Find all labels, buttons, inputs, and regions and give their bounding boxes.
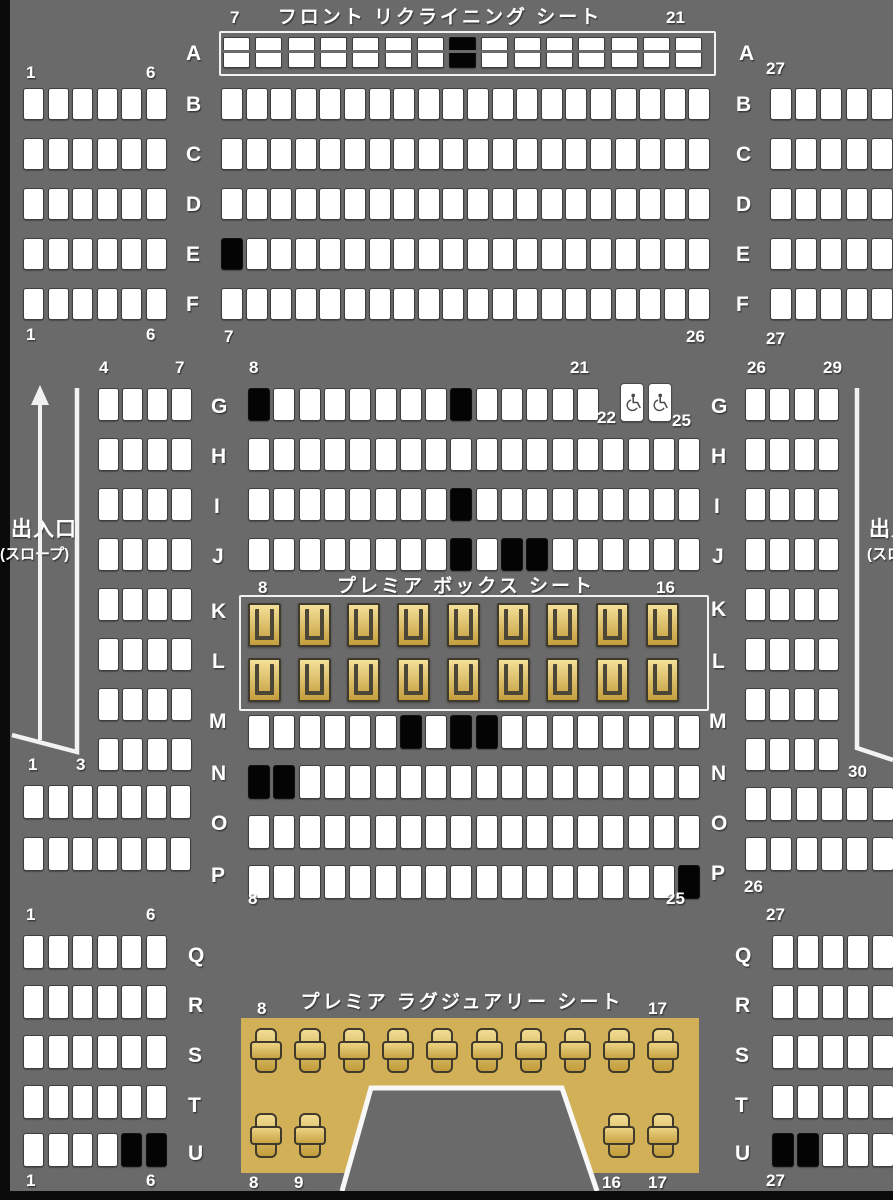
seat-M14[interactable] [400,715,422,749]
seat-J24[interactable] [653,538,675,571]
seat-A15[interactable] [481,37,508,68]
seat-E26[interactable] [688,238,710,270]
seat-F23[interactable] [615,288,637,320]
seat-B17[interactable] [467,88,489,120]
seat-M9[interactable] [273,715,295,749]
seat-G24[interactable] [648,383,672,422]
seat-L7[interactable] [171,638,192,671]
seat-E12[interactable] [344,238,366,270]
seat-B3[interactable] [72,88,93,120]
seat-J15[interactable] [425,538,447,571]
seat-E7[interactable] [221,238,243,270]
seat-G4[interactable] [98,388,119,421]
seat-E27[interactable] [770,238,792,270]
seat-G8[interactable] [248,388,270,421]
seat-N15[interactable] [425,765,447,799]
seat-I10[interactable] [299,488,321,521]
seat-I7[interactable] [171,488,192,521]
seat-C25[interactable] [664,138,686,170]
seat-D5[interactable] [121,188,142,220]
seat-H15[interactable] [425,438,447,471]
seat-C13[interactable] [369,138,391,170]
seat-R4[interactable] [97,985,118,1019]
seat-A10[interactable] [320,37,347,68]
seat-P11[interactable] [324,865,346,899]
seat-P14[interactable] [400,865,422,899]
seat-P30[interactable] [846,837,868,871]
seat-B10[interactable] [295,88,317,120]
seat-D30[interactable] [846,188,868,220]
seat-E14[interactable] [393,238,415,270]
seat-D16[interactable] [442,188,464,220]
seat-M29[interactable] [818,688,839,721]
seat-B20[interactable] [541,88,563,120]
seat-S10[interactable] [338,1028,370,1073]
seat-A7[interactable] [223,37,250,68]
seat-L12[interactable] [447,658,480,702]
seat-I22[interactable] [602,488,624,521]
seat-J18[interactable] [501,538,523,571]
seat-Q1[interactable] [23,935,44,969]
seat-P20[interactable] [552,865,574,899]
seat-E5[interactable] [121,238,142,270]
seat-D10[interactable] [295,188,317,220]
seat-O1[interactable] [23,785,44,819]
seat-I17[interactable] [476,488,498,521]
seat-D26[interactable] [688,188,710,220]
seat-Q3[interactable] [72,935,93,969]
seat-I19[interactable] [526,488,548,521]
seat-J4[interactable] [98,538,119,571]
seat-E10[interactable] [295,238,317,270]
seat-O22[interactable] [602,815,624,849]
seat-Q28[interactable] [797,935,819,969]
seat-D13[interactable] [369,188,391,220]
seat-C31[interactable] [871,138,893,170]
seat-N29[interactable] [818,738,839,771]
seat-E24[interactable] [639,238,661,270]
seat-F3[interactable] [72,288,93,320]
seat-M18[interactable] [501,715,523,749]
seat-N7[interactable] [171,738,192,771]
seat-T1[interactable] [23,1085,44,1119]
seat-F26[interactable] [688,288,710,320]
seat-D6[interactable] [146,188,167,220]
seat-B1[interactable] [23,88,44,120]
seat-O3[interactable] [72,785,93,819]
seat-L10[interactable] [347,658,380,702]
seat-A11[interactable] [352,37,379,68]
seat-N16[interactable] [450,765,472,799]
seat-U16[interactable] [603,1113,635,1158]
seat-K8[interactable] [248,603,281,647]
seat-O31[interactable] [872,787,893,821]
seat-U29[interactable] [822,1133,844,1167]
seat-M24[interactable] [653,715,675,749]
seat-B21[interactable] [565,88,587,120]
seat-H24[interactable] [653,438,675,471]
seat-D15[interactable] [418,188,440,220]
seat-E17[interactable] [467,238,489,270]
seat-C7[interactable] [221,138,243,170]
seat-A9[interactable] [288,37,315,68]
seat-D29[interactable] [820,188,842,220]
seat-Q6[interactable] [146,935,167,969]
seat-D27[interactable] [770,188,792,220]
seat-A14[interactable] [449,37,476,68]
seat-H7[interactable] [171,438,192,471]
seat-N25[interactable] [678,765,700,799]
seat-M11[interactable] [324,715,346,749]
seat-J11[interactable] [324,538,346,571]
seat-E21[interactable] [565,238,587,270]
seat-S11[interactable] [382,1028,414,1073]
seat-L5[interactable] [122,638,143,671]
seat-N20[interactable] [552,765,574,799]
seat-C22[interactable] [590,138,612,170]
seat-R1[interactable] [23,985,44,1019]
seat-F27[interactable] [770,288,792,320]
seat-N19[interactable] [526,765,548,799]
seat-E18[interactable] [492,238,514,270]
seat-B18[interactable] [492,88,514,120]
seat-E29[interactable] [820,238,842,270]
seat-J12[interactable] [349,538,371,571]
seat-D9[interactable] [270,188,292,220]
seat-F16[interactable] [442,288,464,320]
seat-B19[interactable] [516,88,538,120]
seat-C21[interactable] [565,138,587,170]
seat-A20[interactable] [643,37,670,68]
seat-H28[interactable] [794,438,815,471]
seat-P27[interactable] [770,837,792,871]
seat-M12[interactable] [349,715,371,749]
seat-N11[interactable] [324,765,346,799]
seat-F10[interactable] [295,288,317,320]
seat-C14[interactable] [393,138,415,170]
seat-N10[interactable] [299,765,321,799]
seat-G11[interactable] [324,388,346,421]
seat-E4[interactable] [97,238,118,270]
seat-S1[interactable] [23,1035,44,1069]
seat-L29[interactable] [818,638,839,671]
seat-H20[interactable] [552,438,574,471]
seat-P6[interactable] [146,837,167,871]
seat-S30[interactable] [847,1035,869,1069]
seat-D28[interactable] [795,188,817,220]
seat-J16[interactable] [450,538,472,571]
seat-C20[interactable] [541,138,563,170]
seat-P19[interactable] [526,865,548,899]
seat-Q27[interactable] [772,935,794,969]
seat-P29[interactable] [821,837,843,871]
seat-T5[interactable] [121,1085,142,1119]
seat-B28[interactable] [795,88,817,120]
seat-S8[interactable] [250,1028,282,1073]
seat-J26[interactable] [745,538,766,571]
seat-K7[interactable] [171,588,192,621]
seat-H18[interactable] [501,438,523,471]
seat-J20[interactable] [552,538,574,571]
seat-U30[interactable] [847,1133,869,1167]
seat-O19[interactable] [526,815,548,849]
seat-O13[interactable] [375,815,397,849]
seat-P9[interactable] [273,865,295,899]
seat-R28[interactable] [797,985,819,1019]
seat-H11[interactable] [324,438,346,471]
seat-Q30[interactable] [847,935,869,969]
seat-I14[interactable] [400,488,422,521]
seat-P31[interactable] [872,837,893,871]
seat-A13[interactable] [417,37,444,68]
seat-N17[interactable] [476,765,498,799]
seat-R5[interactable] [121,985,142,1019]
seat-N13[interactable] [375,765,397,799]
seat-S3[interactable] [72,1035,93,1069]
seat-G17[interactable] [476,388,498,421]
seat-M13[interactable] [375,715,397,749]
seat-G20[interactable] [552,388,574,421]
seat-B2[interactable] [48,88,69,120]
seat-G6[interactable] [147,388,168,421]
seat-U31[interactable] [872,1133,893,1167]
seat-G16[interactable] [450,388,472,421]
seat-S4[interactable] [97,1035,118,1069]
seat-G18[interactable] [501,388,523,421]
seat-C15[interactable] [418,138,440,170]
seat-B12[interactable] [344,88,366,120]
seat-T30[interactable] [847,1085,869,1119]
seat-F17[interactable] [467,288,489,320]
seat-I29[interactable] [818,488,839,521]
seat-P18[interactable] [501,865,523,899]
seat-C2[interactable] [48,138,69,170]
seat-C10[interactable] [295,138,317,170]
seat-R6[interactable] [146,985,167,1019]
seat-M20[interactable] [552,715,574,749]
seat-U28[interactable] [797,1133,819,1167]
seat-T31[interactable] [872,1085,893,1119]
seat-P28[interactable] [796,837,818,871]
seat-N24[interactable] [653,765,675,799]
seat-G10[interactable] [299,388,321,421]
seat-S15[interactable] [559,1028,591,1073]
seat-J21[interactable] [577,538,599,571]
seat-U27[interactable] [772,1133,794,1167]
seat-I16[interactable] [450,488,472,521]
seat-O29[interactable] [821,787,843,821]
seat-L15[interactable] [596,658,629,702]
seat-F29[interactable] [820,288,842,320]
seat-O2[interactable] [48,785,69,819]
seat-I5[interactable] [122,488,143,521]
seat-A8[interactable] [255,37,282,68]
seat-C27[interactable] [770,138,792,170]
seat-P16[interactable] [450,865,472,899]
seat-C9[interactable] [270,138,292,170]
seat-N26[interactable] [745,738,766,771]
seat-G23[interactable] [620,383,644,422]
seat-I20[interactable] [552,488,574,521]
seat-H4[interactable] [98,438,119,471]
seat-M4[interactable] [98,688,119,721]
seat-P3[interactable] [72,837,93,871]
seat-J25[interactable] [678,538,700,571]
seat-I13[interactable] [375,488,397,521]
seat-J29[interactable] [818,538,839,571]
seat-I12[interactable] [349,488,371,521]
seat-G5[interactable] [122,388,143,421]
seat-L14[interactable] [546,658,579,702]
seat-S16[interactable] [603,1028,635,1073]
seat-O9[interactable] [273,815,295,849]
seat-Q5[interactable] [121,935,142,969]
seat-B13[interactable] [369,88,391,120]
seat-P26[interactable] [745,837,767,871]
seat-B27[interactable] [770,88,792,120]
seat-O17[interactable] [476,815,498,849]
seat-O20[interactable] [552,815,574,849]
seat-R31[interactable] [872,985,893,1019]
seat-B24[interactable] [639,88,661,120]
seat-S27[interactable] [772,1035,794,1069]
seat-H23[interactable] [628,438,650,471]
seat-B30[interactable] [846,88,868,120]
seat-E20[interactable] [541,238,563,270]
seat-T27[interactable] [772,1085,794,1119]
seat-D14[interactable] [393,188,415,220]
seat-C3[interactable] [72,138,93,170]
seat-C26[interactable] [688,138,710,170]
seat-O24[interactable] [653,815,675,849]
seat-K26[interactable] [745,588,766,621]
seat-M26[interactable] [745,688,766,721]
seat-K29[interactable] [818,588,839,621]
seat-P7[interactable] [170,837,191,871]
seat-F9[interactable] [270,288,292,320]
seat-K10[interactable] [347,603,380,647]
seat-B29[interactable] [820,88,842,120]
seat-C24[interactable] [639,138,661,170]
seat-H27[interactable] [769,438,790,471]
seat-J6[interactable] [147,538,168,571]
seat-H21[interactable] [577,438,599,471]
seat-D20[interactable] [541,188,563,220]
seat-Q2[interactable] [48,935,69,969]
seat-S31[interactable] [872,1035,893,1069]
seat-M21[interactable] [577,715,599,749]
seat-E25[interactable] [664,238,686,270]
seat-U3[interactable] [72,1133,93,1167]
seat-P12[interactable] [349,865,371,899]
seat-P4[interactable] [97,837,118,871]
seat-B11[interactable] [319,88,341,120]
seat-P23[interactable] [628,865,650,899]
seat-G13[interactable] [375,388,397,421]
seat-R2[interactable] [48,985,69,1019]
seat-M22[interactable] [602,715,624,749]
seat-N22[interactable] [602,765,624,799]
seat-S13[interactable] [471,1028,503,1073]
seat-C18[interactable] [492,138,514,170]
seat-F2[interactable] [48,288,69,320]
seat-L8[interactable] [248,658,281,702]
seat-P17[interactable] [476,865,498,899]
seat-F24[interactable] [639,288,661,320]
seat-G7[interactable] [171,388,192,421]
seat-U1[interactable] [23,1133,44,1167]
seat-E19[interactable] [516,238,538,270]
seat-K12[interactable] [447,603,480,647]
seat-R27[interactable] [772,985,794,1019]
seat-O23[interactable] [628,815,650,849]
seat-D7[interactable] [221,188,243,220]
seat-P13[interactable] [375,865,397,899]
seat-H9[interactable] [273,438,295,471]
seat-K28[interactable] [794,588,815,621]
seat-S14[interactable] [515,1028,547,1073]
seat-M25[interactable] [678,715,700,749]
seat-I28[interactable] [794,488,815,521]
seat-S12[interactable] [426,1028,458,1073]
seat-B22[interactable] [590,88,612,120]
seat-U8[interactable] [250,1113,282,1158]
seat-H19[interactable] [526,438,548,471]
seat-I27[interactable] [769,488,790,521]
seat-G27[interactable] [769,388,790,421]
seat-E23[interactable] [615,238,637,270]
seat-U17[interactable] [647,1113,679,1158]
seat-P5[interactable] [121,837,142,871]
seat-O15[interactable] [425,815,447,849]
seat-O14[interactable] [400,815,422,849]
seat-S17[interactable] [647,1028,679,1073]
seat-B8[interactable] [246,88,268,120]
seat-J9[interactable] [273,538,295,571]
seat-D18[interactable] [492,188,514,220]
seat-I6[interactable] [147,488,168,521]
seat-A16[interactable] [514,37,541,68]
seat-O30[interactable] [846,787,868,821]
seat-D11[interactable] [319,188,341,220]
seat-D3[interactable] [72,188,93,220]
seat-I4[interactable] [98,488,119,521]
seat-G21[interactable] [577,388,599,421]
seat-B26[interactable] [688,88,710,120]
seat-E16[interactable] [442,238,464,270]
seat-O8[interactable] [248,815,270,849]
seat-O21[interactable] [577,815,599,849]
seat-E6[interactable] [146,238,167,270]
seat-Q4[interactable] [97,935,118,969]
seat-N12[interactable] [349,765,371,799]
seat-K13[interactable] [497,603,530,647]
seat-F13[interactable] [369,288,391,320]
seat-T28[interactable] [797,1085,819,1119]
seat-B16[interactable] [442,88,464,120]
seat-R29[interactable] [822,985,844,1019]
seat-N27[interactable] [769,738,790,771]
seat-E30[interactable] [846,238,868,270]
seat-G19[interactable] [526,388,548,421]
seat-P1[interactable] [23,837,44,871]
seat-O27[interactable] [770,787,792,821]
seat-E9[interactable] [270,238,292,270]
seat-E2[interactable] [48,238,69,270]
seat-C6[interactable] [146,138,167,170]
seat-M19[interactable] [526,715,548,749]
seat-B9[interactable] [270,88,292,120]
